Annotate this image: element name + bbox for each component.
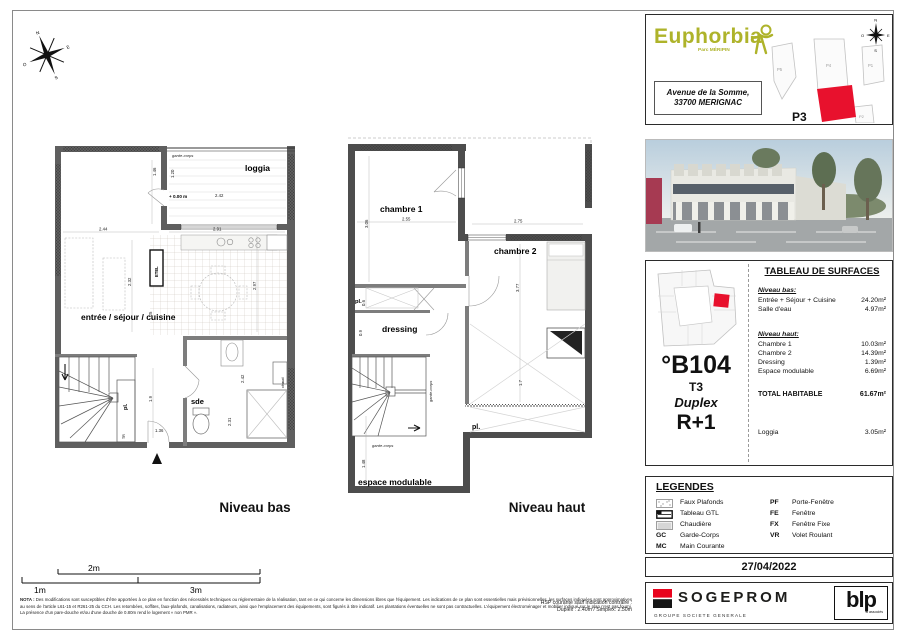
compass-icon: N S E O — [20, 28, 75, 83]
key-plan-thumbnail — [652, 266, 742, 350]
staircase — [59, 357, 135, 442]
label-loggia: loggia — [245, 163, 270, 173]
label-pl-mid: pl. — [472, 424, 480, 431]
label-chaud: chaud — [280, 377, 285, 388]
staircase — [352, 357, 426, 436]
floor-plan-niveau-haut: chambre 1 chambre 2 dressing pl. pl. esp… — [348, 136, 592, 502]
address-line-2: 33700 MERIGNAC — [655, 98, 761, 108]
site-plan: P5 P4 P1 P2 P3 N S E O — [764, 19, 892, 123]
label-pl: pl. — [123, 403, 129, 410]
unit-number: °B104 — [646, 351, 746, 380]
svg-text:P3: P3 — [792, 110, 807, 123]
scale-bar: 2m 1m 3m — [18, 562, 278, 596]
svg-text:S: S — [874, 48, 877, 53]
table-row: Dressing1.39m² — [758, 359, 886, 366]
project-subtitle: Parc MÉRIPIN — [698, 48, 730, 53]
svg-text:1.7: 1.7 — [518, 379, 523, 386]
unit-highlight — [713, 293, 729, 307]
roof-window — [547, 328, 585, 358]
svg-text:2.97: 2.97 — [252, 281, 257, 290]
svg-text:N: N — [874, 19, 877, 23]
legend-abbr: FX — [770, 521, 779, 528]
label-garde-corps-bottom: garde-corps — [372, 443, 393, 448]
legend-abbr: VR — [770, 532, 779, 539]
label-tr: TR — [122, 434, 126, 439]
title-niveau-haut: Niveau haut — [487, 500, 607, 515]
table-row: Chambre 110.03m² — [758, 341, 886, 348]
legend-item: Porte-Fenêtre — [792, 499, 834, 506]
sogeprom-subtitle: GROUPE SOCIETE GENERALE — [654, 613, 747, 618]
date-box: 27/04/2022 — [645, 557, 893, 577]
svg-text:1.9: 1.9 — [148, 395, 153, 402]
legend-item: Tableau GTL — [680, 510, 719, 517]
legend-abbr: PF — [770, 499, 779, 506]
svg-text:P5: P5 — [777, 67, 783, 72]
table-row: Salle d'eau4.97m² — [758, 306, 886, 313]
label-dressing: dressing — [382, 324, 417, 334]
plan-sheet: N S E O — [0, 0, 900, 636]
svg-text:O: O — [861, 33, 864, 38]
unit-building-highlight — [817, 85, 856, 122]
table-row: Entrée + Séjour + Cuisine24.20m² — [758, 297, 886, 304]
closet — [366, 288, 418, 308]
blp-logo-box: blp & associés — [834, 586, 888, 620]
svg-text:0.6: 0.6 — [361, 299, 366, 306]
svg-text:3m: 3m — [190, 585, 202, 595]
title-niveau-bas: Niveau bas — [195, 500, 315, 515]
entrance-arrow-icon — [152, 453, 162, 464]
svg-text:3.77: 3.77 — [515, 283, 520, 292]
svg-text:2.32: 2.32 — [127, 277, 132, 286]
svg-text:P1: P1 — [868, 63, 874, 68]
bathroom-fixtures — [193, 340, 287, 438]
table-row: Espace modulable6.69m² — [758, 368, 886, 375]
legend-item: Faux Plafonds — [680, 499, 723, 506]
loggia-row: Loggia3.05m² — [758, 429, 886, 436]
svg-text:E: E — [887, 33, 890, 38]
svg-text:2.31: 2.31 — [227, 417, 232, 426]
logos-box: SOGEPROM GROUPE SOCIETE GENERALE blp & a… — [645, 582, 893, 624]
svg-text:2m: 2m — [88, 563, 100, 573]
total-row: TOTAL HABITABLE61.67m² — [758, 391, 886, 398]
svg-text:P4: P4 — [826, 63, 832, 68]
label-sejour: entrée / séjour / cuisine — [81, 312, 176, 322]
label-chambre1: chambre 1 — [380, 204, 423, 214]
svg-text:O: O — [22, 61, 28, 67]
unit-type: T3 — [646, 380, 746, 394]
divider — [748, 264, 749, 462]
address-line-1: Avenue de la Somme, — [655, 88, 761, 98]
legend-item: Fenêtre Fixe — [792, 521, 830, 528]
svg-text:N: N — [35, 30, 40, 36]
project-address: Avenue de la Somme, 33700 MERIGNAC — [654, 81, 762, 115]
label-espace-modulable: espace modulable — [358, 477, 432, 487]
legend-item: Fenêtre — [792, 510, 815, 517]
plan-bas-drawing: garde-corps loggia + 0.00 m entrée / séj… — [55, 146, 295, 464]
window-hatches — [360, 144, 591, 240]
label-chambre2: chambre 2 — [494, 246, 537, 256]
label-garde-corps-side: garde-corps — [428, 381, 433, 402]
floor-plan-niveau-bas: garde-corps loggia + 0.00 m entrée / séj… — [55, 140, 300, 470]
svg-text:1.46: 1.46 — [152, 167, 157, 176]
svg-text:1.36: 1.36 — [155, 428, 164, 433]
societe-generale-icon — [653, 589, 672, 608]
svg-text:2.91: 2.91 — [213, 227, 222, 232]
legend-box: LEGENDES Faux Plafonds Tableau GTL Chaud… — [645, 476, 893, 554]
surface-table: TABLEAU DE SURFACES Niveau bas: Entrée +… — [752, 261, 892, 467]
surfaces-box: °B104 T3 Duplex R+1 TABLEAU DE SURFACES … — [645, 260, 893, 466]
svg-text:S: S — [54, 75, 59, 81]
legend-item: Garde-Corps — [680, 532, 719, 539]
legend-abbr: GC — [656, 532, 666, 539]
walls — [348, 144, 592, 493]
chaudiere-icon — [656, 521, 673, 530]
label-etel: ETEL — [154, 266, 159, 277]
group-heading: Niveau bas: — [758, 287, 796, 294]
legend-title: LEGENDES — [656, 481, 714, 493]
label-sde: sde — [191, 397, 204, 406]
svg-text:3.06: 3.06 — [364, 219, 369, 228]
svg-text:P2: P2 — [859, 114, 865, 119]
bed — [547, 242, 585, 310]
svg-text:2.75: 2.75 — [514, 219, 523, 224]
svg-text:1m: 1m — [34, 585, 46, 595]
group-heading: Niveau haut: — [758, 331, 799, 338]
plan-haut-drawing: chambre 1 chambre 2 dressing pl. pl. esp… — [348, 138, 592, 493]
legend-abbr: MC — [656, 543, 667, 550]
svg-text:1.48: 1.48 — [361, 459, 366, 468]
faux-plafonds-icon — [656, 499, 673, 508]
svg-text:2.55: 2.55 — [402, 217, 411, 222]
unit-style: Duplex — [646, 395, 746, 410]
table-row: Chambre 214.39m² — [758, 350, 886, 357]
legend-item: Volet Roulant — [792, 532, 832, 539]
label-level: + 0.00 m — [169, 194, 187, 199]
tableau-gtl-icon — [656, 510, 673, 519]
sogeprom-logo: SOGEPROM — [678, 589, 790, 606]
legend-item: Main Courante — [680, 543, 725, 550]
hsp-note: HSP courante sauf indication contraire :… — [468, 600, 632, 614]
legend-abbr: FE — [770, 510, 779, 517]
legend-item: Chaudière — [680, 521, 711, 528]
svg-text:E: E — [66, 44, 71, 50]
surface-table-title: TABLEAU DE SURFACES — [752, 266, 892, 277]
unit-level: R+1 — [646, 411, 746, 435]
svg-text:0.9: 0.9 — [358, 329, 363, 336]
svg-text:2.44: 2.44 — [99, 227, 108, 232]
svg-text:2.42: 2.42 — [240, 374, 245, 383]
label-garde-corps: garde-corps — [172, 153, 193, 158]
svg-text:1.20: 1.20 — [170, 169, 175, 178]
svg-text:2.42: 2.42 — [215, 193, 224, 198]
project-header-box: Euphorbia Parc MÉRIPIN Avenue de la Somm… — [645, 14, 893, 125]
building-rendering-photo — [645, 139, 893, 252]
svg-text:1.25: 1.25 — [148, 311, 153, 320]
